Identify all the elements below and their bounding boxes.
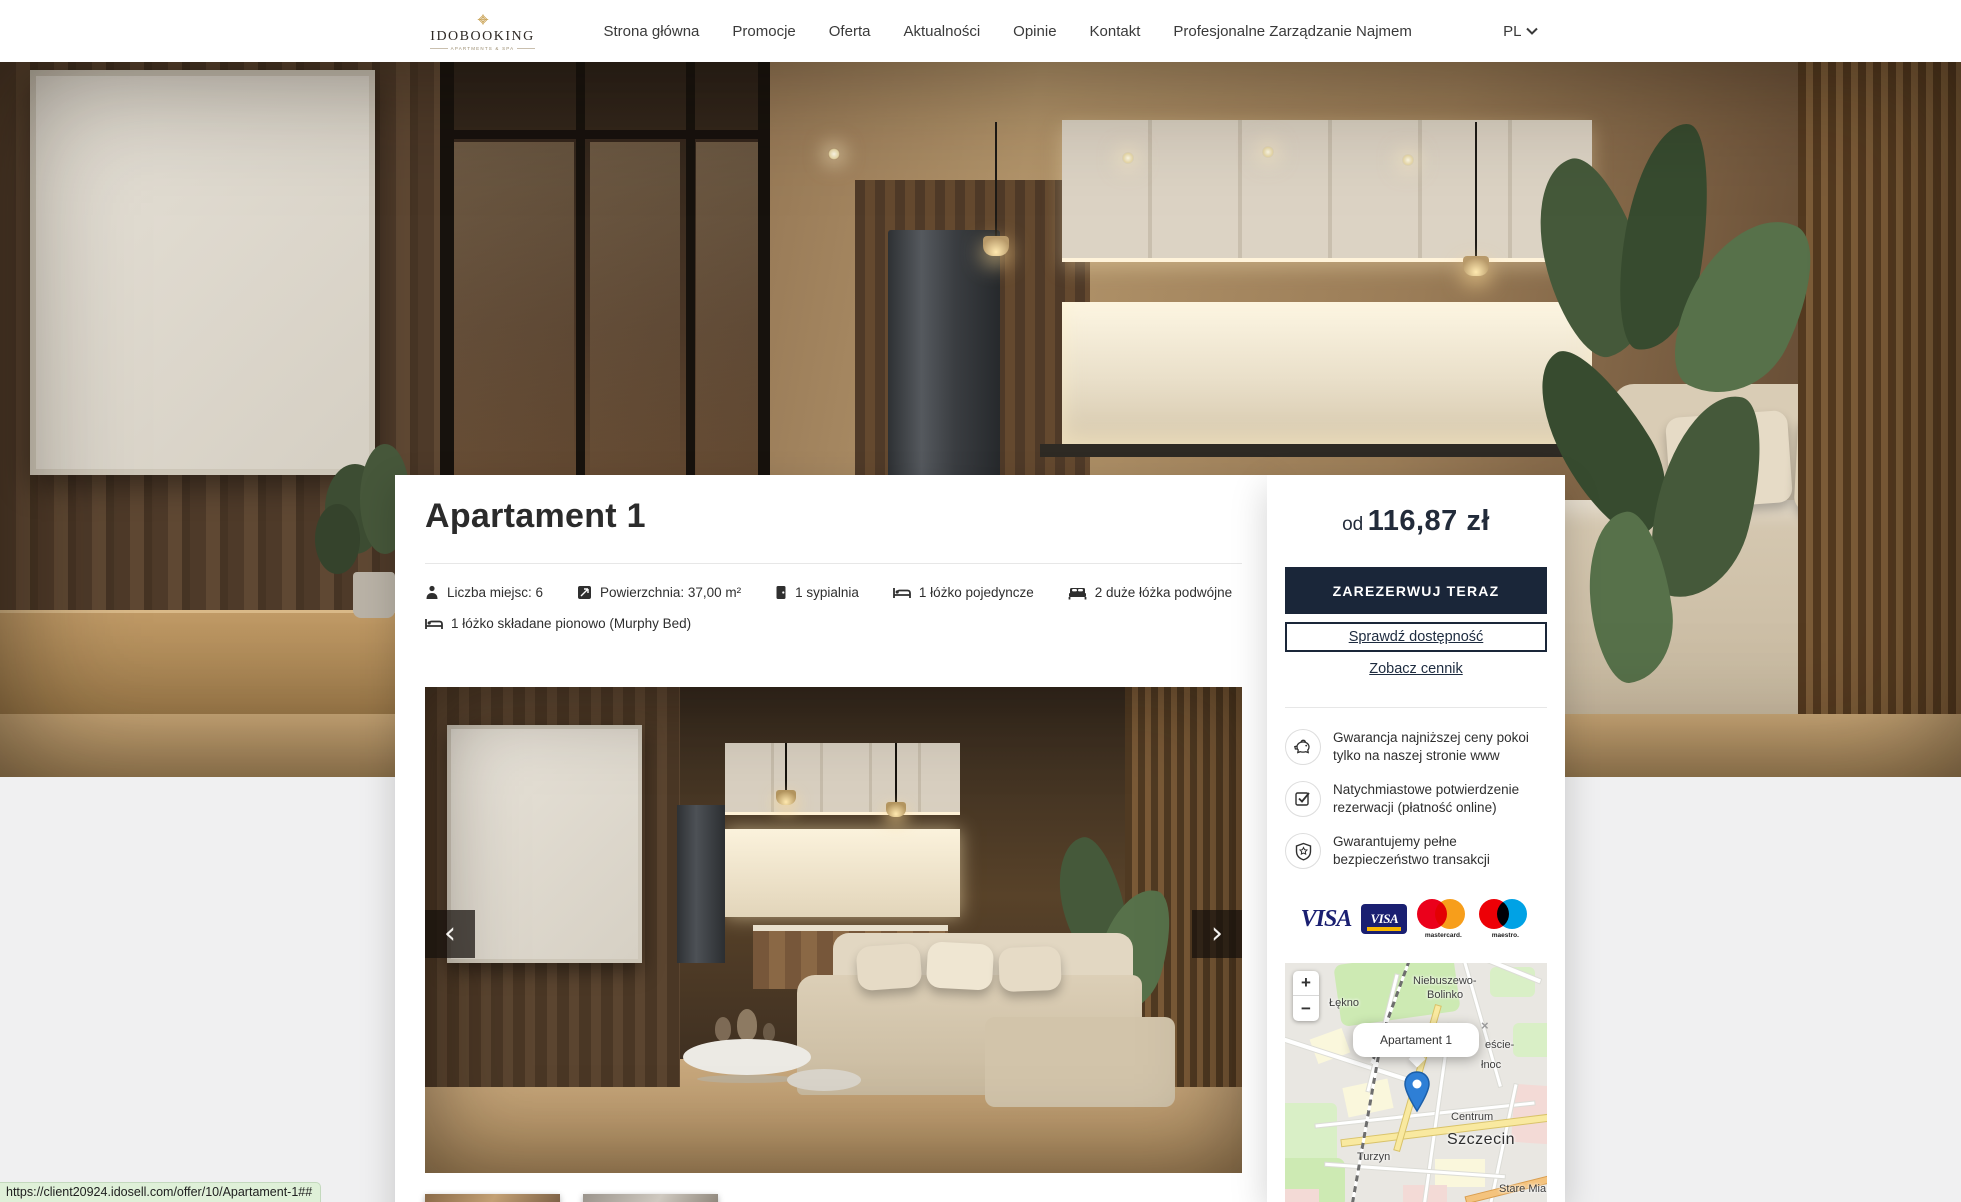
feature-bedrooms: 1 sypialnia: [775, 585, 859, 600]
nav-item-home[interactable]: Strona główna: [604, 23, 700, 40]
chevron-left-icon: ‹: [444, 919, 456, 949]
thumbnail-1[interactable]: [425, 1194, 560, 1202]
site-logo[interactable]: IDOBOOKING APARTMENTS & SPA: [424, 11, 542, 51]
map-zoom-in-button[interactable]: +: [1293, 971, 1319, 996]
single-bed-icon: [893, 586, 911, 600]
chevron-right-icon: ›: [1211, 919, 1223, 949]
nav-item-promotions[interactable]: Promocje: [732, 23, 795, 40]
site-header: IDOBOOKING APARTMENTS & SPA Strona główn…: [0, 0, 1961, 62]
guarantee-instant-confirmation: Natychmiastowe potwierdzenie rezerwacji …: [1285, 781, 1547, 817]
map-label-polnoc: łnoc: [1481, 1059, 1501, 1071]
visa-icon: VISA: [1301, 906, 1352, 933]
door-icon: [775, 585, 787, 600]
price-prefix: od: [1342, 514, 1363, 535]
language-code: PL: [1503, 23, 1521, 40]
page-title: Apartament 1: [425, 497, 1242, 536]
check-availability-button[interactable]: Sprawdź dostępność: [1285, 622, 1547, 652]
nav-item-reviews[interactable]: Opinie: [1013, 23, 1056, 40]
visa-electron-icon: VISA: [1361, 904, 1407, 934]
double-bed-icon: [1068, 586, 1087, 600]
carousel-prev-button[interactable]: ‹: [425, 910, 475, 958]
feature-list: Liczba miejsc: 6 Powierzchnia: 37,00 m² …: [425, 585, 1242, 631]
area-icon: [577, 585, 592, 600]
reserve-now-button[interactable]: ZAREZERWUJ TERAZ: [1285, 567, 1547, 614]
map-label-niebuszewo: Niebuszewo-: [1413, 975, 1477, 987]
logo-brand-text: IDOBOOKING: [430, 29, 534, 45]
carousel-next-button[interactable]: ›: [1192, 910, 1242, 958]
person-icon: [425, 585, 439, 600]
feature-single-bed: 1 łóżko pojedyncze: [893, 585, 1034, 600]
nav-item-offer[interactable]: Oferta: [829, 23, 871, 40]
booking-sidebar: od 116,87 zł ZAREZERWUJ TERAZ Sprawdź do…: [1267, 475, 1565, 1202]
carousel-photo: [425, 687, 1242, 1173]
mastercard-icon: mastercard.: [1417, 899, 1469, 939]
feature-double-bed: 2 duże łóżka podwójne: [1068, 585, 1232, 600]
map-zoom-out-button[interactable]: −: [1293, 996, 1319, 1021]
divider: [1285, 707, 1547, 708]
browser-viewport: IDOBOOKING APARTMENTS & SPA Strona główn…: [0, 0, 1961, 1202]
feature-capacity: Liczba miejsc: 6: [425, 585, 543, 600]
main-nav: Strona główna Promocje Oferta Aktualnośc…: [604, 23, 1412, 40]
map-popup-title: Apartament 1: [1380, 1033, 1452, 1047]
map-marker-icon[interactable]: [1403, 1071, 1431, 1113]
photo-carousel: ‹ ›: [425, 687, 1242, 1173]
language-selector[interactable]: PL: [1503, 23, 1537, 40]
see-price-list-link[interactable]: Zobacz cennik: [1267, 660, 1565, 678]
chevron-down-icon: [1526, 27, 1538, 35]
nav-item-rental-management[interactable]: Profesjonalne Zarządzanie Najmem: [1173, 23, 1411, 40]
price-value: 116,87 zł: [1368, 505, 1490, 537]
logo-ornament-icon: [474, 14, 492, 28]
map-label-lekno: Łękno: [1329, 997, 1359, 1009]
nav-item-news[interactable]: Aktualności: [903, 23, 980, 40]
nav-item-contact[interactable]: Kontakt: [1090, 23, 1141, 40]
map-label-turzyn: Turzyn: [1357, 1151, 1390, 1163]
piggy-bank-icon: [1293, 739, 1313, 756]
map-zoom-controls: + −: [1293, 971, 1319, 1021]
thumbnail-strip: [425, 1194, 718, 1202]
map-label-stare-miasto: Stare Mia: [1499, 1183, 1546, 1195]
feature-murphy-bed: 1 łóżko składane pionowo (Murphy Bed): [425, 616, 691, 631]
guarantee-best-price: Gwarancja najniższej ceny pokoi tylko na…: [1285, 729, 1547, 765]
map-label-szczecin: Szczecin: [1447, 1131, 1515, 1149]
shield-icon: [1295, 842, 1312, 861]
price-row: od 116,87 zł: [1267, 505, 1565, 538]
check-availability-label: Sprawdź dostępność: [1349, 629, 1484, 645]
logo-tagline: APARTMENTS & SPA: [430, 46, 536, 51]
murphy-bed-icon: [425, 617, 443, 631]
guarantee-secure-transactions: Gwarantujemy pełne bezpieczeństwo transa…: [1285, 833, 1547, 869]
map-label-centrum: Centrum: [1451, 1111, 1493, 1123]
divider: [425, 563, 1242, 564]
maestro-icon: maestro.: [1479, 899, 1531, 939]
listing-card: Apartament 1 Liczba miejsc: 6 Powierzchn…: [395, 475, 1272, 1202]
map-popup: Apartament 1: [1353, 1023, 1479, 1057]
feature-area: Powierzchnia: 37,00 m²: [577, 585, 741, 600]
map-label-bolinko: Bolinko: [1427, 989, 1463, 1001]
guarantee-list: Gwarancja najniższej ceny pokoi tylko na…: [1285, 729, 1547, 869]
map-label-srodmiescie: eście-: [1485, 1039, 1514, 1051]
thumbnail-2[interactable]: [583, 1194, 718, 1202]
status-bar-url: https://client20924.idosell.com/offer/10…: [0, 1182, 321, 1202]
map-popup-close-icon[interactable]: ×: [1481, 1018, 1489, 1033]
checkbox-icon: [1294, 790, 1312, 808]
location-map[interactable]: Łękno Niebuszewo- Bolinko eście- łnoc Ce…: [1285, 963, 1547, 1202]
payment-methods: VISA VISA mastercard. maestro.: [1267, 899, 1565, 939]
